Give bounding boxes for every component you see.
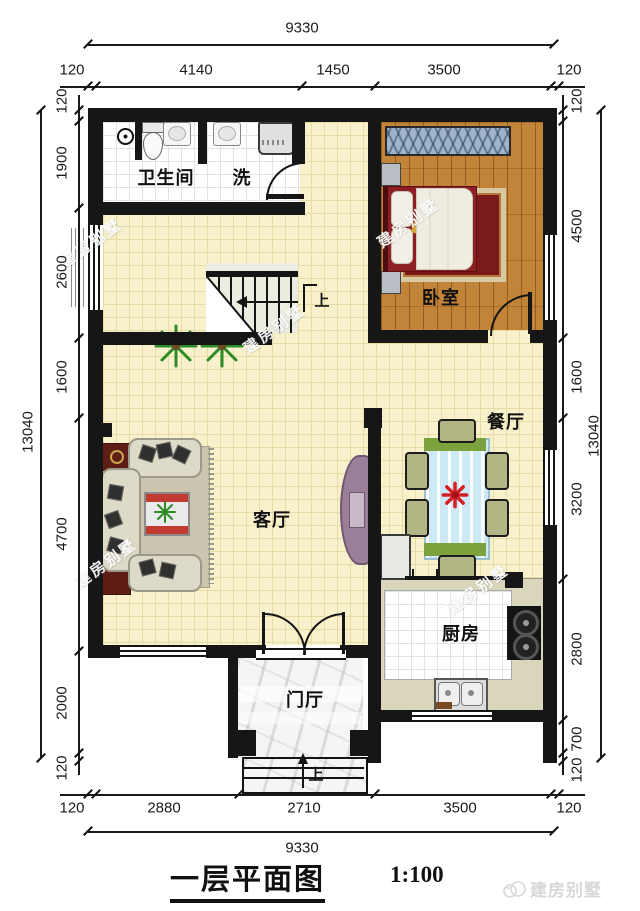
dim-left-total: 13040 xyxy=(20,411,37,453)
fridge xyxy=(380,534,411,580)
label-kitchen: 厨房 xyxy=(442,620,480,646)
sink-bowl xyxy=(168,126,186,141)
dim-top-seg: 3500 xyxy=(427,62,460,79)
label-wash: 洗 xyxy=(233,164,252,190)
dim-left-seg: 120 xyxy=(54,755,71,780)
tv-screen xyxy=(349,492,365,528)
dim-top-seg: 1450 xyxy=(316,62,349,79)
rug-fringe xyxy=(208,448,214,584)
nightstand xyxy=(381,271,401,294)
nightstand xyxy=(381,163,401,186)
window xyxy=(543,450,557,525)
dim-right-seg: 120 xyxy=(569,757,586,782)
wall-living-bottom xyxy=(340,645,380,658)
foyer-marble-band xyxy=(240,712,361,724)
wardrobe xyxy=(385,126,511,156)
dining-chair xyxy=(485,452,509,490)
stove-burner xyxy=(513,610,539,636)
dim-line-bottom-total xyxy=(88,831,554,833)
window xyxy=(412,710,492,722)
dim-right-seg: 2800 xyxy=(569,632,586,665)
sink-drain xyxy=(445,690,451,696)
wash-door-leaf xyxy=(266,194,304,199)
brand-name: 建房别墅 xyxy=(530,876,602,901)
wall-right xyxy=(543,525,557,763)
dim-right-seg: 120 xyxy=(569,88,586,113)
dim-bottom-seg: 3500 xyxy=(443,800,476,817)
label-bedroom: 卧室 xyxy=(422,284,460,310)
label-foyer: 门厅 xyxy=(286,686,324,712)
dim-right-seg: 700 xyxy=(569,726,586,751)
plan-scale: 1:100 xyxy=(390,862,444,888)
dim-left-seg: 2600 xyxy=(54,255,71,288)
dining-chair xyxy=(405,452,429,490)
dim-left-seg: 1600 xyxy=(54,360,71,393)
dining-chair xyxy=(485,499,509,537)
sofa-pillow xyxy=(159,562,177,580)
sink-soap xyxy=(436,702,452,709)
wall-shower-half xyxy=(135,122,142,160)
dim-bottom-seg: 120 xyxy=(59,800,84,817)
stair-rail-mark xyxy=(303,284,317,286)
corner-table-decor xyxy=(110,450,124,464)
dim-top-seg: 4140 xyxy=(179,62,212,79)
sofa-pillow xyxy=(156,442,174,460)
floor-plan: 上 上 卫生间 洗 卧室 餐厅 客厅 厨房 xyxy=(0,0,640,911)
dim-top-total: 9330 xyxy=(285,20,318,37)
dining-chair xyxy=(405,499,429,537)
dim-right-seg: 3200 xyxy=(569,482,586,515)
shower-drain xyxy=(117,128,134,145)
dim-left-seg: 120 xyxy=(54,88,71,113)
dim-top-seg: 120 xyxy=(556,62,581,79)
stair-arrow-head xyxy=(236,296,247,308)
stairs-up-label: 上 xyxy=(314,290,329,311)
bedroom-door-leaf xyxy=(528,292,532,334)
entry-up-label: 上 xyxy=(308,764,323,785)
wall-right xyxy=(543,320,557,450)
wall-bedroom-bottom xyxy=(381,330,488,343)
dim-right-seg: 4500 xyxy=(569,209,586,242)
dim-bottom-seg: 2880 xyxy=(147,800,180,817)
dim-line-top-seg xyxy=(60,86,585,88)
plant xyxy=(152,322,200,370)
entry-arrow-head xyxy=(298,753,308,764)
wall-stub xyxy=(103,423,112,437)
window xyxy=(120,645,206,658)
dim-bottom-seg: 2710 xyxy=(287,800,320,817)
brand-icon xyxy=(502,879,526,899)
dim-bottom-seg: 120 xyxy=(556,800,581,817)
wall-foyer-pillar xyxy=(228,730,256,756)
dim-bottom-total: 9330 xyxy=(285,840,318,857)
label-bathroom: 卫生间 xyxy=(138,164,195,190)
wall-bath-bottom xyxy=(103,202,305,215)
stove-burner xyxy=(513,634,539,660)
dim-line-right-seg xyxy=(562,95,564,775)
wall-right xyxy=(543,108,557,235)
wall-wash-right xyxy=(292,122,305,164)
brand-logo: 建房别墅 xyxy=(502,876,602,901)
label-living: 客厅 xyxy=(253,506,291,532)
dim-left-seg: 2000 xyxy=(54,686,71,719)
sink-drain xyxy=(468,690,474,696)
entry-arrow-line xyxy=(302,762,304,788)
washing-machine-panel xyxy=(262,140,287,145)
sink-bowl xyxy=(218,126,236,141)
plan-title: 一层平面图 xyxy=(170,856,325,903)
dim-line-bottom-seg xyxy=(60,794,585,796)
window xyxy=(543,235,557,320)
dim-line-left-total xyxy=(40,110,42,758)
wall-left xyxy=(88,310,103,658)
wall-bath-divider xyxy=(198,122,207,164)
dim-left-seg: 1900 xyxy=(54,146,71,179)
dim-left-seg: 4700 xyxy=(54,517,71,550)
wall-living-bottom xyxy=(88,645,120,658)
label-dining: 餐厅 xyxy=(487,408,525,434)
dim-line-left-seg xyxy=(78,95,80,775)
kitchen-door-tick xyxy=(412,569,414,577)
dim-top-seg: 120 xyxy=(59,62,84,79)
wall-top xyxy=(88,108,557,122)
kitchen-door-tick xyxy=(436,569,438,577)
sofa-pillow xyxy=(107,484,124,501)
dim-right-total: 13040 xyxy=(586,415,603,457)
wall-foyer-pillar xyxy=(350,730,380,756)
table-flower xyxy=(441,481,469,509)
dim-line-top-total xyxy=(88,44,554,46)
dining-chair xyxy=(438,419,476,443)
coffee-table-plant xyxy=(153,500,177,524)
washing-machine xyxy=(258,122,295,155)
dim-right-seg: 1600 xyxy=(569,360,586,393)
wall-left xyxy=(88,122,103,225)
